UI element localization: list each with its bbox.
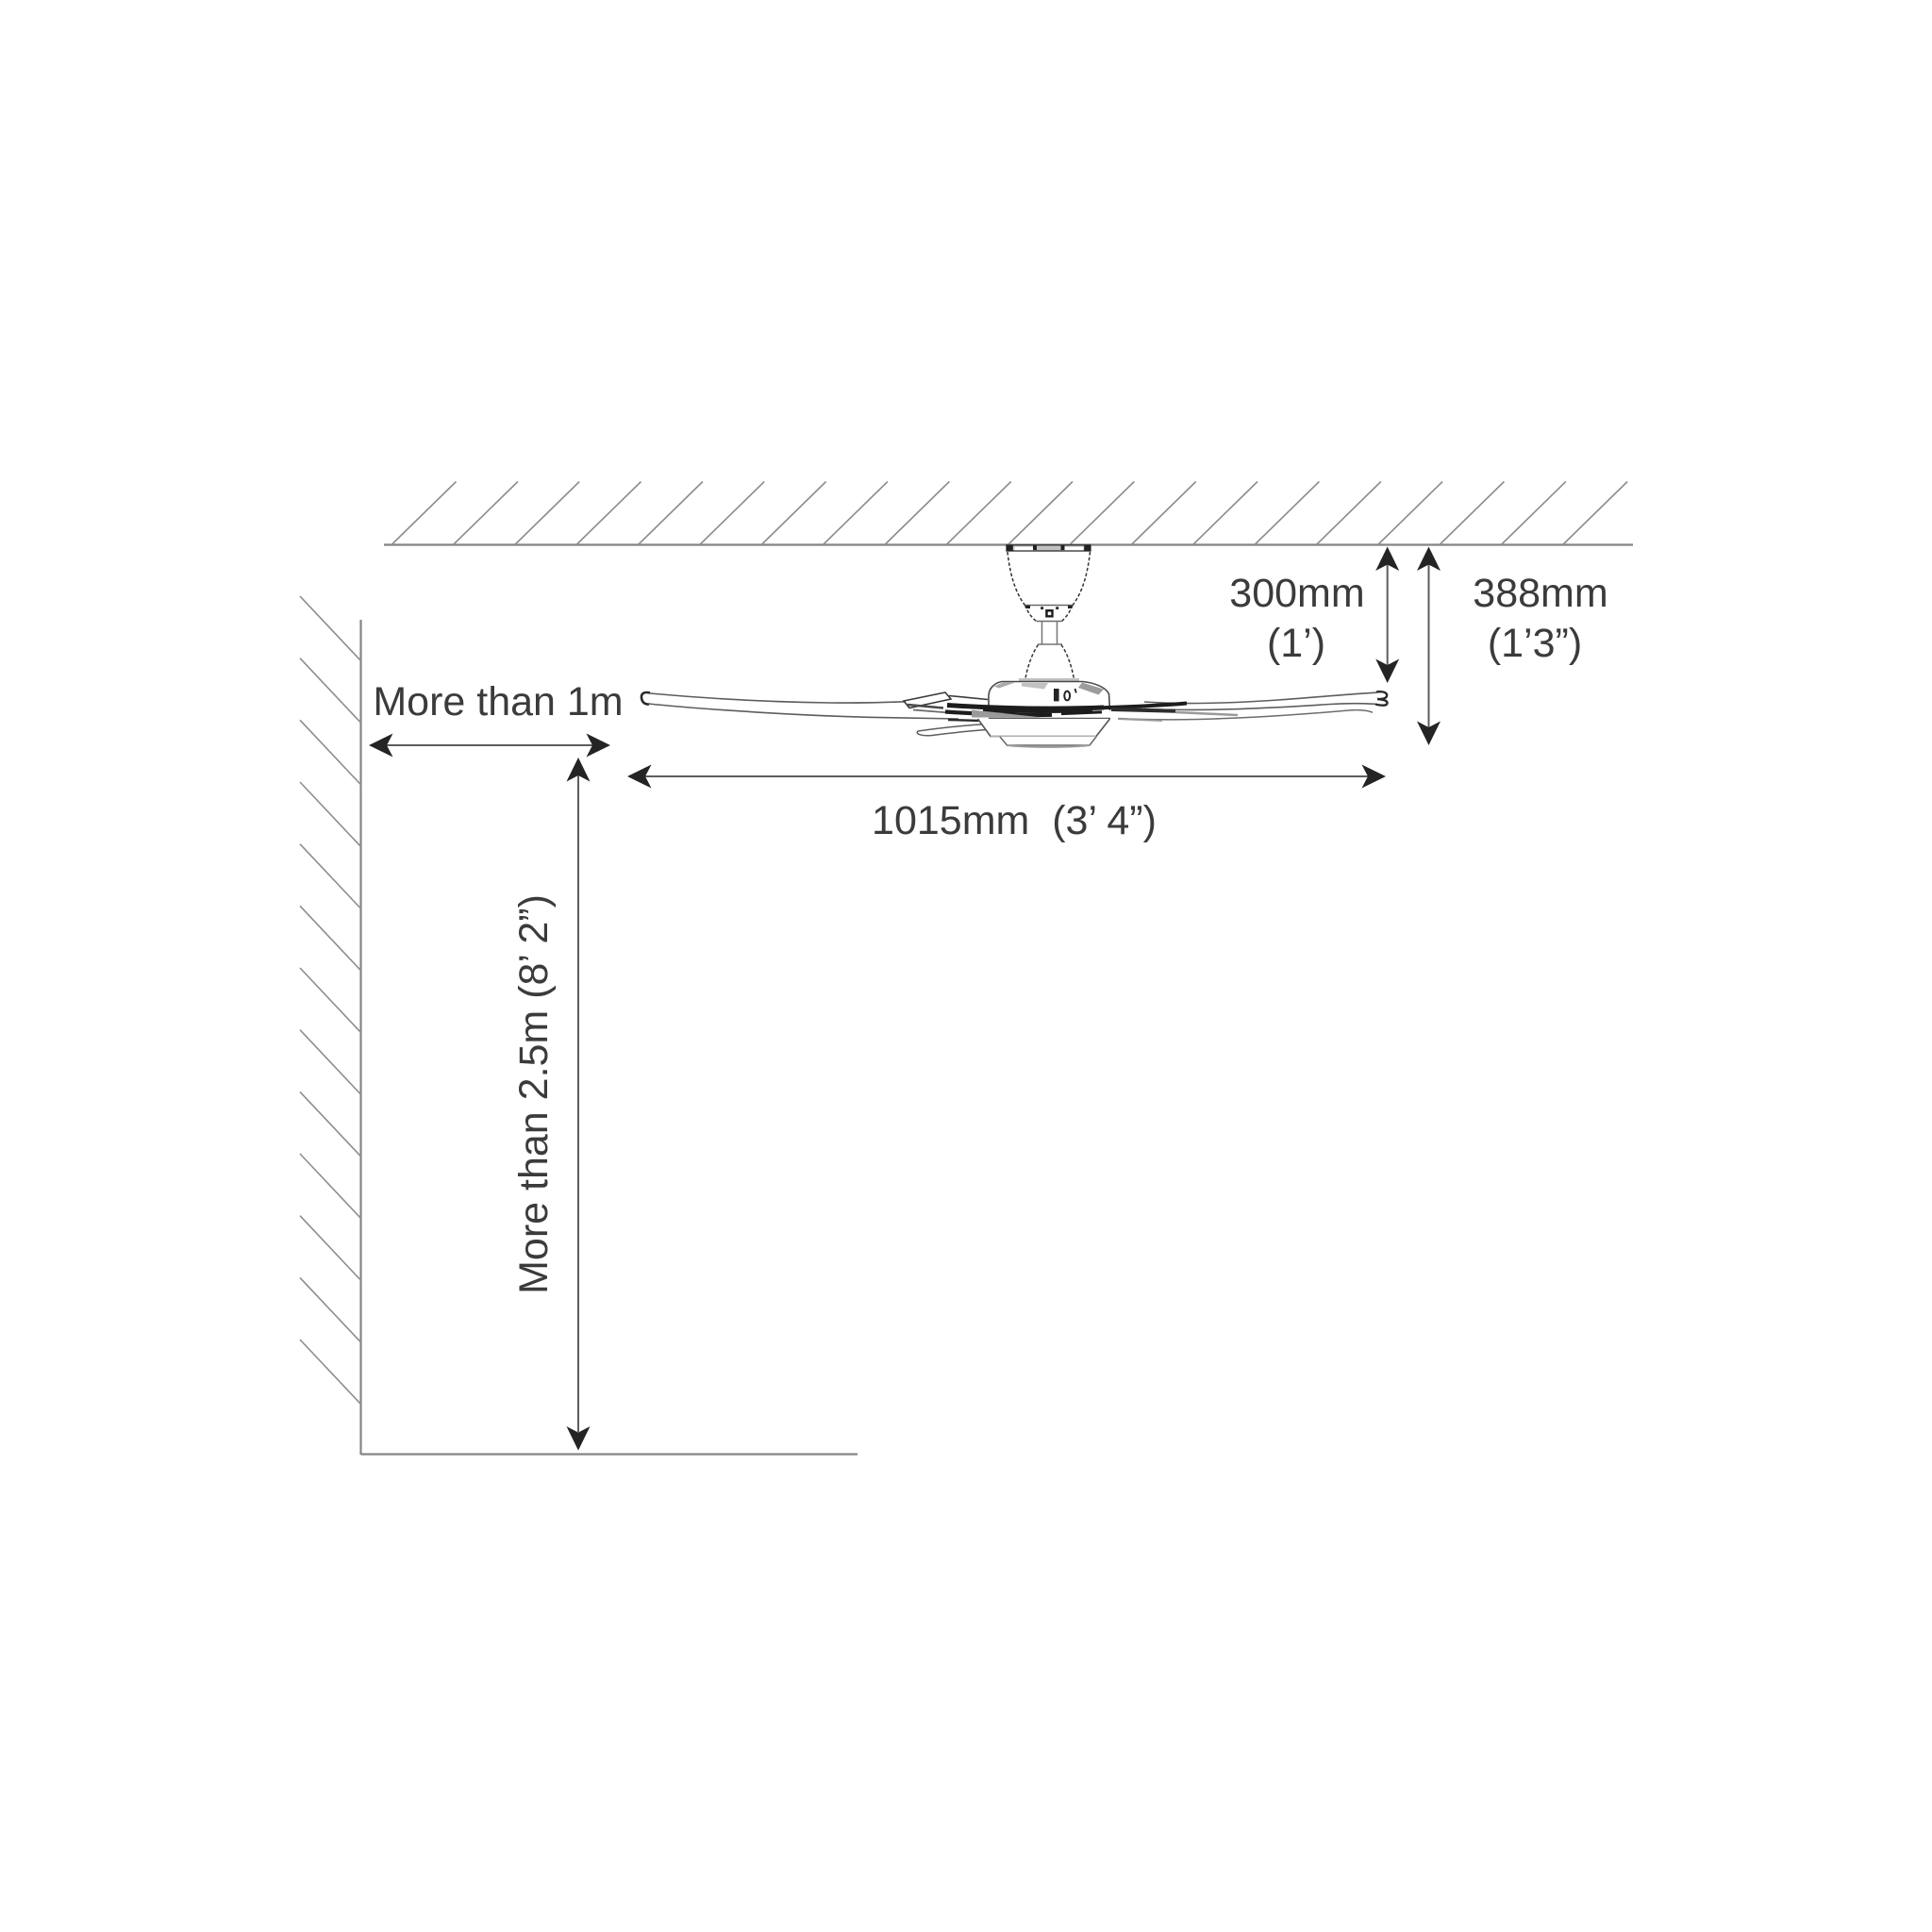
svg-text:1015mm (3’ 4”): 1015mm (3’ 4”) xyxy=(872,798,1157,843)
svg-text:(1’): (1’) xyxy=(1267,621,1325,666)
svg-text:388mm: 388mm xyxy=(1473,571,1607,616)
svg-text:More than 2.5m (8’ 2”): More than 2.5m (8’ 2”) xyxy=(511,894,557,1294)
svg-text:(1’3”): (1’3”) xyxy=(1488,621,1582,666)
svg-text:More than 1m: More than 1m xyxy=(373,679,623,724)
svg-text:300mm: 300mm xyxy=(1229,571,1364,616)
